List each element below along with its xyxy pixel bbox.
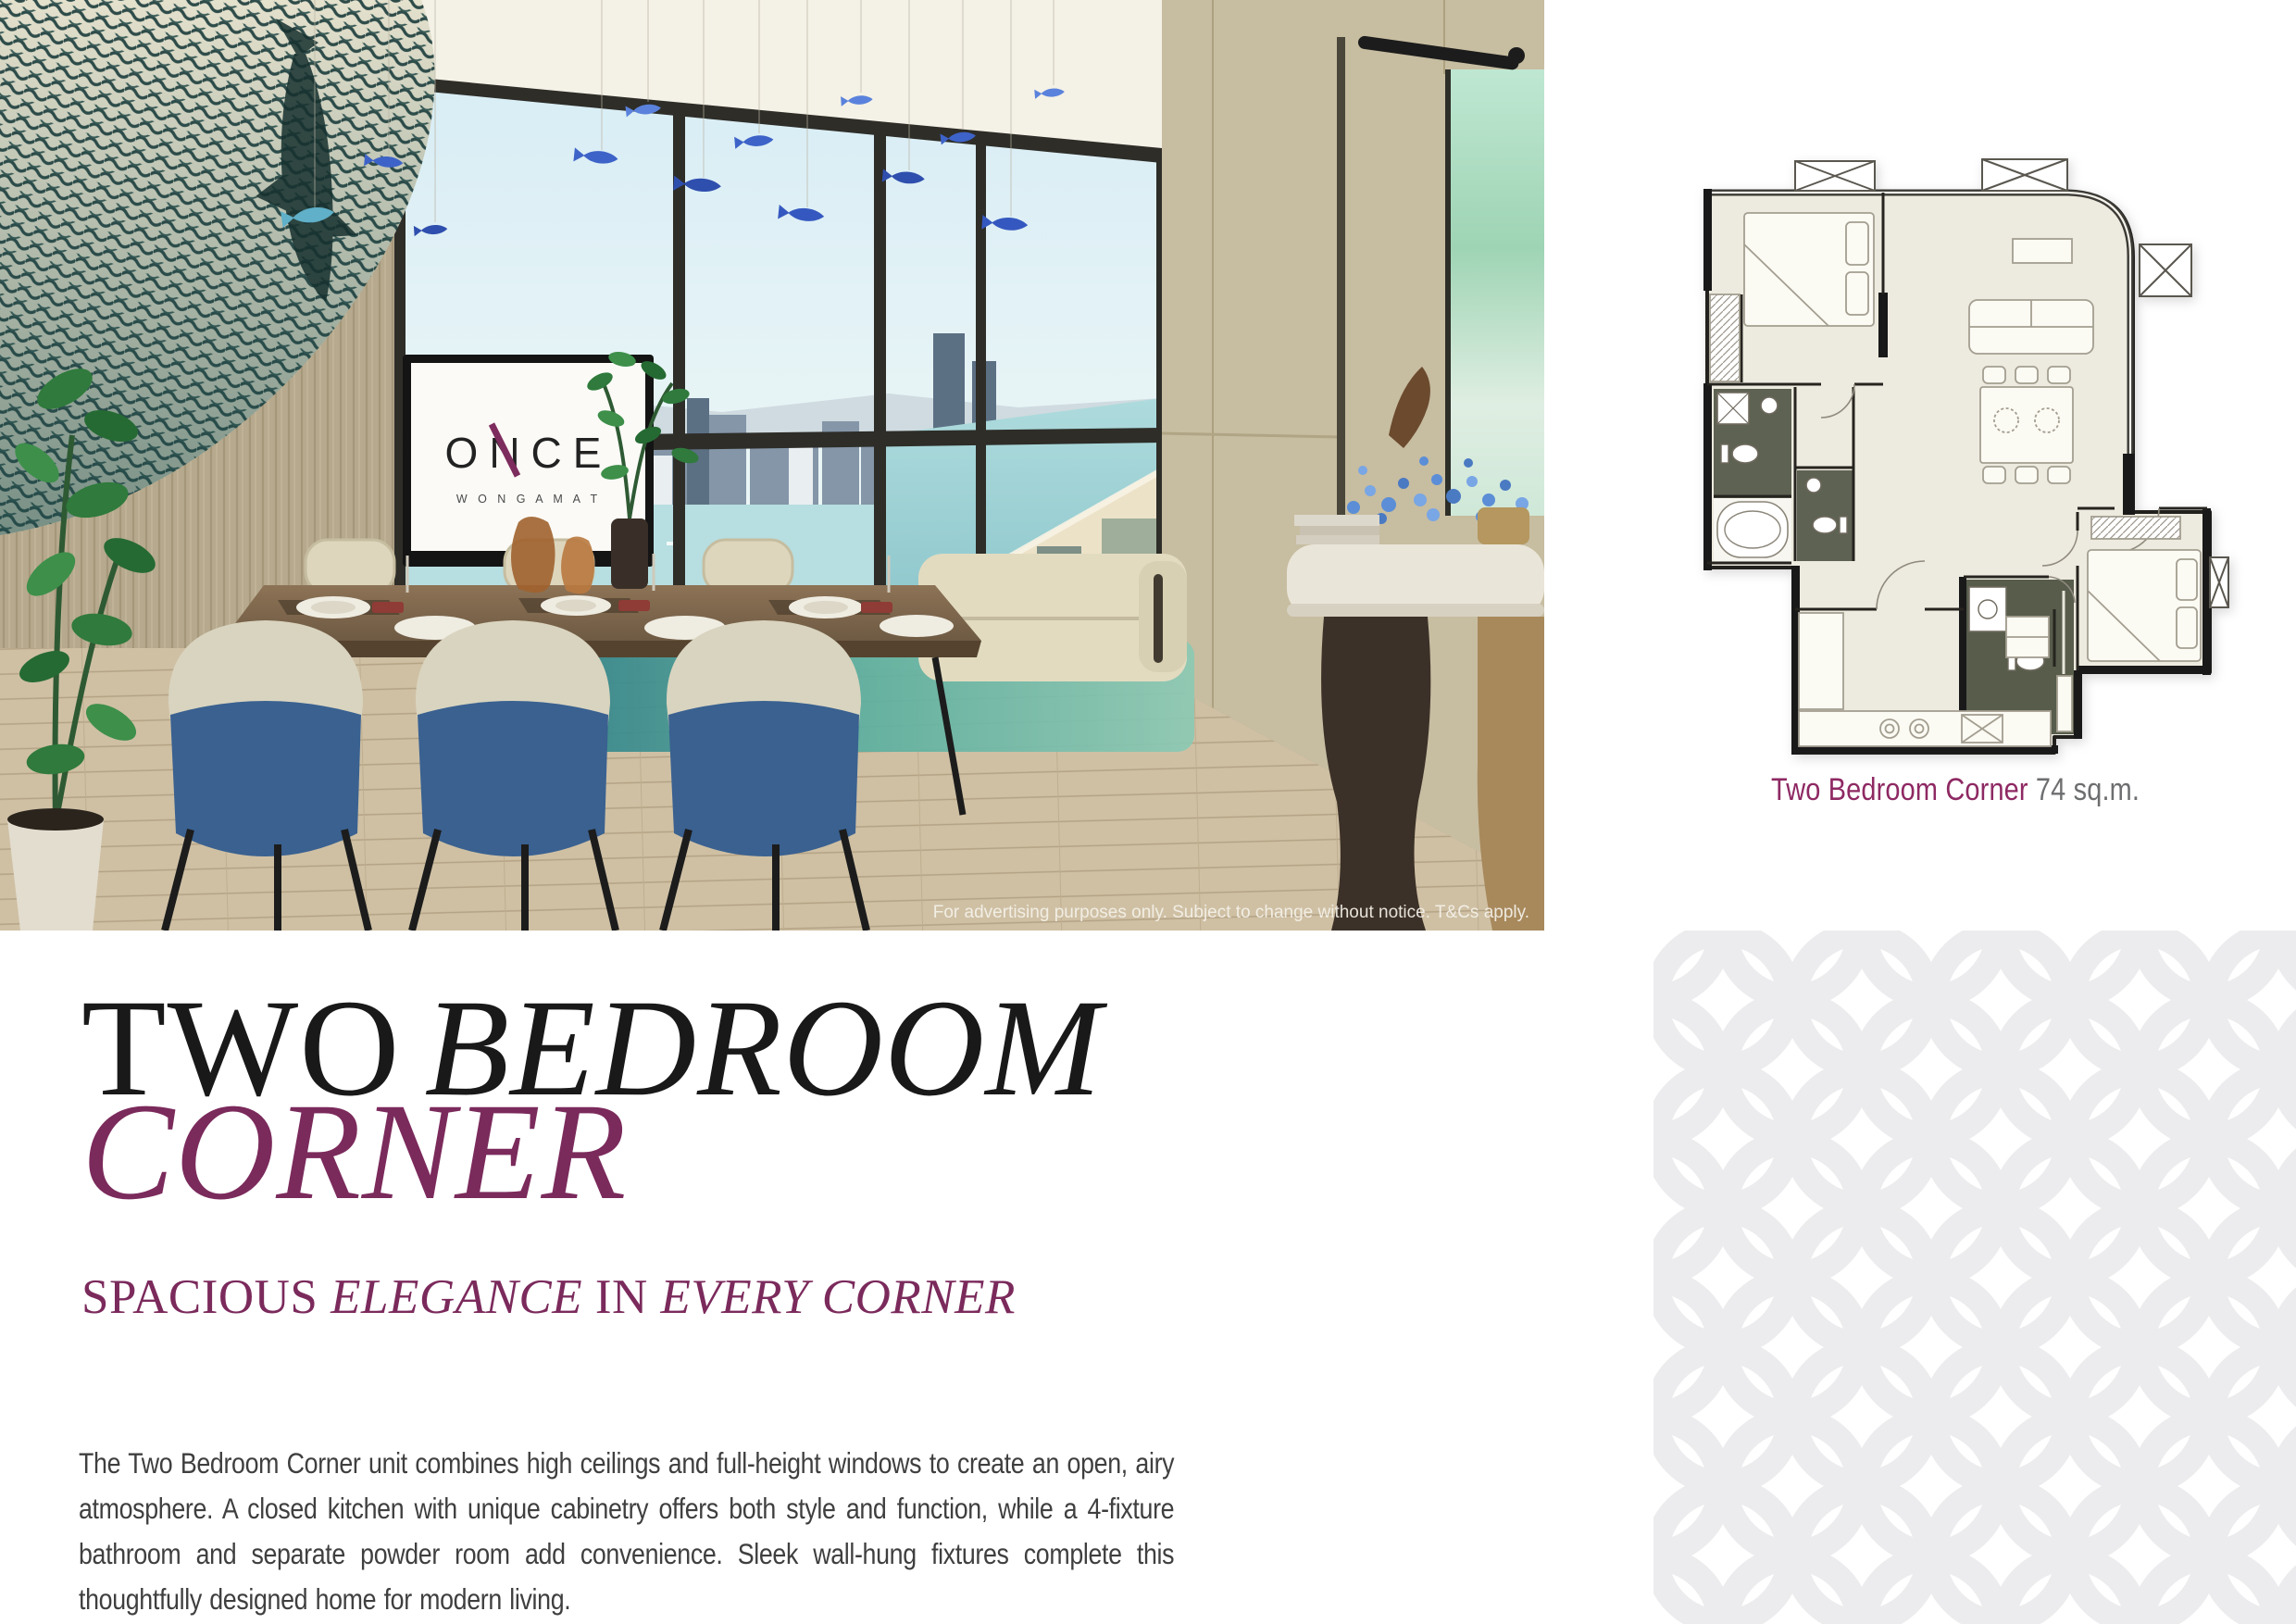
floorplan-caption-name: Two Bedroom Corner: [1771, 772, 2036, 807]
disclaimer-text: For advertising purposes only. Subject t…: [933, 903, 1529, 922]
amber-vase-small: [561, 537, 594, 594]
plant-pot: [7, 819, 104, 931]
floorplan-caption-area: 74 sq.m.: [2036, 772, 2140, 807]
subtitle-part-3: IN: [582, 1270, 660, 1324]
title-word-corner: CORNER: [81, 1075, 627, 1229]
tv-logo-text: ONCE: [445, 429, 613, 477]
subtitle-part-4: EVERY CORNER: [661, 1270, 1016, 1324]
books: [1294, 515, 1379, 544]
page-title: TWOBEDROOM CORNER: [81, 996, 1102, 1204]
plan-bathroom: [1714, 389, 1791, 561]
body-paragraph: The Two Bedroom Corner unit combines hig…: [79, 1441, 1174, 1622]
floor-plan: [1656, 156, 2232, 759]
tv-sublogo-text: W O N G A M A T: [456, 493, 601, 506]
subtitle-part-1: SPACIOUS: [81, 1270, 331, 1324]
console-leg-gold: [1478, 617, 1544, 931]
page-subtitle: SPACIOUS ELEGANCE IN EVERY CORNER: [81, 1269, 1016, 1325]
subtitle-part-2: ELEGANCE: [331, 1270, 582, 1324]
interior-photo: ONCE W O N G A M A T: [0, 0, 1544, 931]
decorative-pattern: [1653, 931, 2296, 1624]
amber-vase: [511, 517, 555, 593]
plan-powder-room: [1797, 470, 1853, 561]
gold-object: [1478, 507, 1529, 544]
floorplan-caption: Two Bedroom Corner 74 sq.m.: [1771, 771, 2140, 808]
